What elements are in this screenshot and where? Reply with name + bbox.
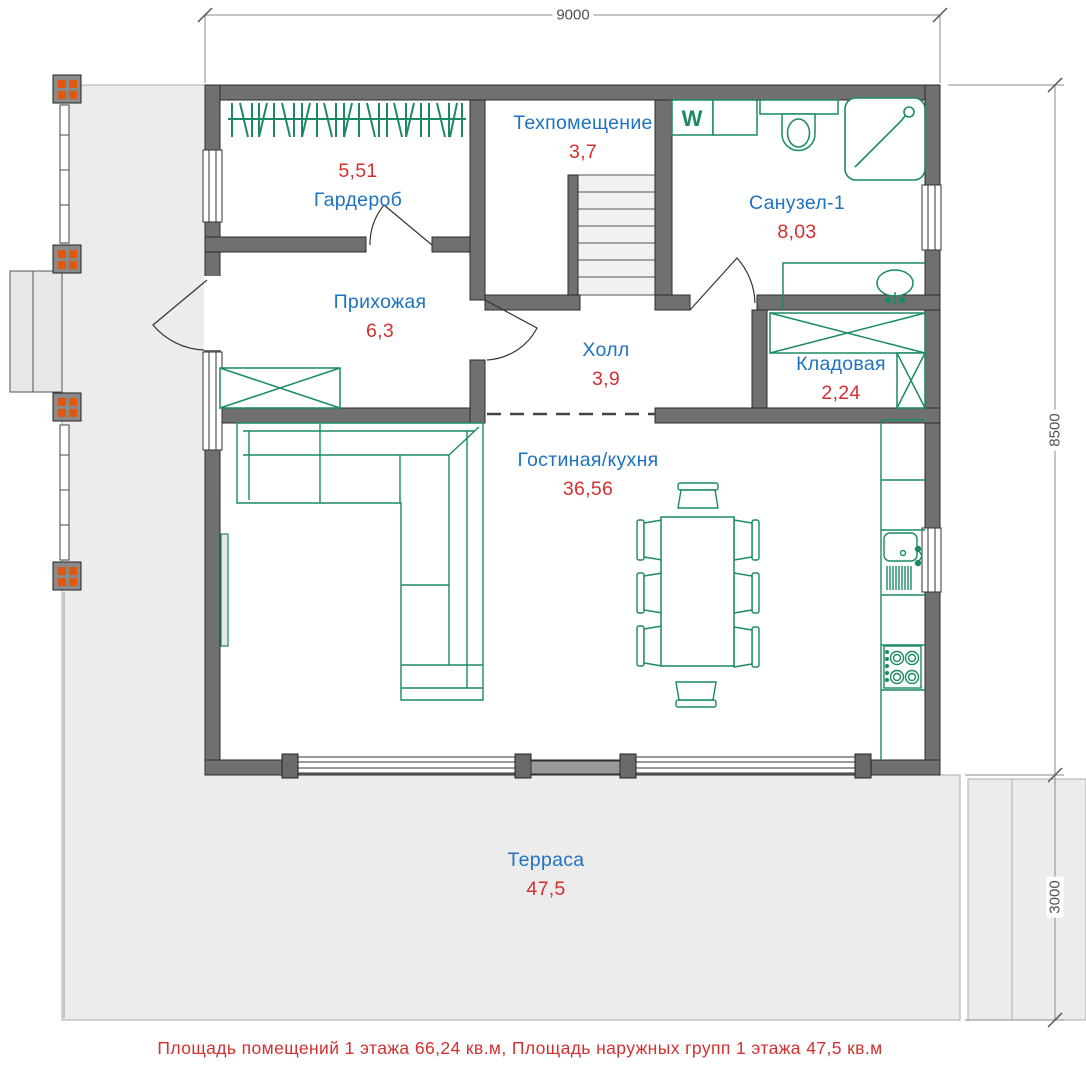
entrance-door-opening: [204, 276, 221, 350]
column-icon: [53, 393, 81, 421]
room-name: Гостиная/кухня: [517, 446, 658, 475]
room-area: 3,7: [513, 138, 652, 167]
dimension-top: 9000: [552, 7, 593, 24]
chair-icon: [637, 573, 662, 613]
room-name: Санузел-1: [749, 189, 845, 218]
entry-closet-icon: [220, 368, 340, 408]
room-label-bathroom: Санузел-1 8,03: [749, 189, 845, 247]
column-icon: [53, 75, 81, 103]
room-name: Техпомещение: [513, 109, 652, 138]
chair-icon: [734, 520, 759, 560]
room-name: Терраса: [508, 846, 585, 875]
stove-icon: [884, 646, 921, 688]
room-area: 47,5: [508, 875, 585, 904]
porch-steps: [10, 271, 62, 392]
column-icon: [53, 562, 81, 590]
dimension-right-lower: 3000: [1047, 876, 1064, 917]
window-icon: [635, 757, 855, 773]
terrace-door: [531, 761, 620, 774]
window-icon: [297, 757, 515, 773]
room-area: 6,3: [334, 317, 427, 346]
room-label-entry: Прихожая 6,3: [334, 288, 427, 346]
area-summary-caption: Площадь помещений 1 этажа 66,24 кв.м, Пл…: [0, 1038, 1040, 1059]
room-label-wardrobe: 5,51 Гардероб: [314, 157, 402, 215]
washing-machine-label: W: [682, 106, 703, 131]
room-area: 2,24: [796, 379, 886, 408]
room-area: 36,56: [517, 475, 658, 504]
room-area: 5,51: [314, 157, 402, 186]
room-label-hall: Холл 3,9: [582, 336, 629, 394]
floor-plan-page: W: [0, 0, 1086, 1080]
column-icon: [53, 245, 81, 273]
room-label-utility: Техпомещение 3,7: [513, 109, 652, 167]
room-label-terrace: Терраса 47,5: [508, 846, 585, 904]
room-label-living-kitchen: Гостиная/кухня 36,56: [517, 446, 658, 504]
room-name: Гардероб: [314, 186, 402, 215]
room-name: Прихожая: [334, 288, 427, 317]
room-label-storage: Кладовая 2,24: [796, 350, 886, 408]
chair-icon: [676, 682, 716, 707]
dimension-right-upper: 8500: [1047, 409, 1064, 450]
window-icon: [203, 150, 222, 222]
chair-icon: [637, 520, 662, 560]
chair-icon: [734, 627, 759, 667]
room-name: Кладовая: [796, 350, 886, 379]
tv-icon: [221, 534, 228, 646]
window-icon: [203, 352, 222, 450]
window-icon: [922, 185, 941, 250]
washing-machine-icon: W: [672, 100, 757, 135]
shower-icon: [845, 98, 925, 180]
window-icon: [922, 528, 941, 592]
room-area: 3,9: [582, 365, 629, 394]
stairs: [568, 175, 655, 295]
chair-icon: [637, 626, 662, 666]
chair-icon: [734, 573, 759, 613]
chair-icon: [678, 483, 718, 508]
room-area: 8,03: [749, 218, 845, 247]
room-name: Холл: [582, 336, 629, 365]
